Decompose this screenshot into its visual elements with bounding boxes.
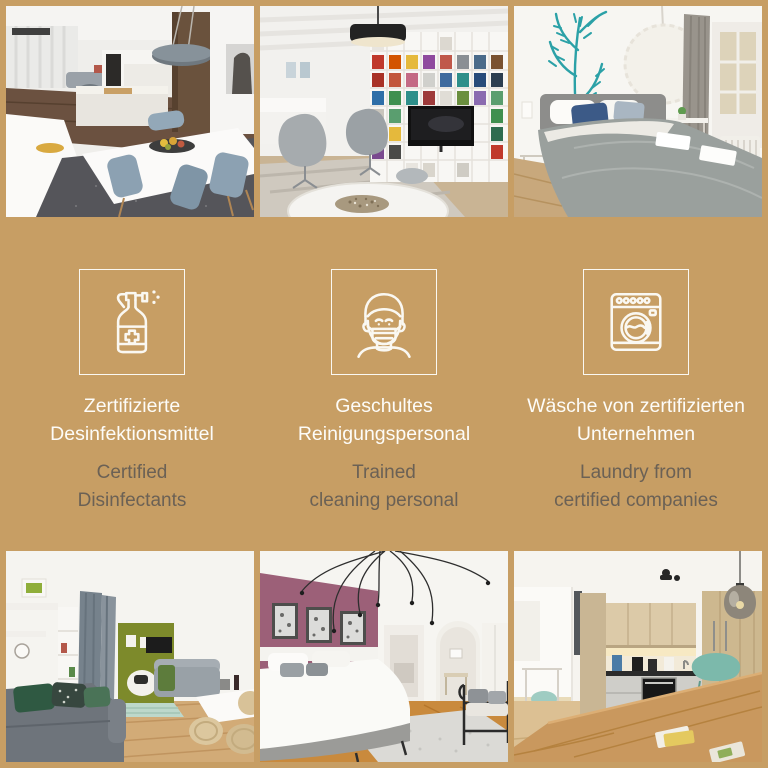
feature-subtitle-en: Trained cleaning personal: [310, 459, 459, 515]
photo-bedroom-purple: [260, 551, 508, 762]
library-lounge-illustration: [260, 6, 508, 217]
washing-machine-icon: [583, 269, 689, 375]
bottom-photo-row: [6, 551, 762, 762]
bedroom-plant-illustration: [514, 6, 762, 217]
top-photo-row: [6, 6, 762, 217]
feature-subtitle-en: Laundry from certified companies: [554, 459, 718, 515]
feature-title-de: Wäsche von zertifizierten Unternehmen: [527, 392, 745, 448]
living-room-illustration: [6, 551, 254, 762]
photo-library-lounge: [260, 6, 508, 217]
feature-laundry: Wäsche von zertifizierten Unternehmen La…: [510, 223, 762, 515]
feature-cleaning-staff: Geschultes Reinigungspersonal Trained cl…: [258, 223, 510, 515]
bedroom-purple-illustration: [260, 551, 508, 762]
photo-kitchen-dining: [6, 6, 254, 217]
feature-title-de: Geschultes Reinigungspersonal: [298, 392, 470, 448]
kitchen-dining-illustration: [6, 6, 254, 217]
photo-bedroom-plant-decal: [514, 6, 762, 217]
collage-page: Zertifizierte Desinfektionsmittel Certif…: [0, 0, 768, 768]
photo-kitchen-wood: [514, 551, 762, 762]
feature-subtitle-en: Certified Disinfectants: [78, 459, 187, 515]
feature-title-de: Zertifizierte Desinfektionsmittel: [50, 392, 214, 448]
feature-disinfectants: Zertifizierte Desinfektionsmittel Certif…: [6, 223, 258, 515]
photo-living-room-green: [6, 551, 254, 762]
kitchen-wood-illustration: [514, 551, 762, 762]
face-mask-icon: [331, 269, 437, 375]
spray-bottle-icon: [79, 269, 185, 375]
hygiene-band: Zertifizierte Desinfektionsmittel Certif…: [6, 223, 762, 545]
